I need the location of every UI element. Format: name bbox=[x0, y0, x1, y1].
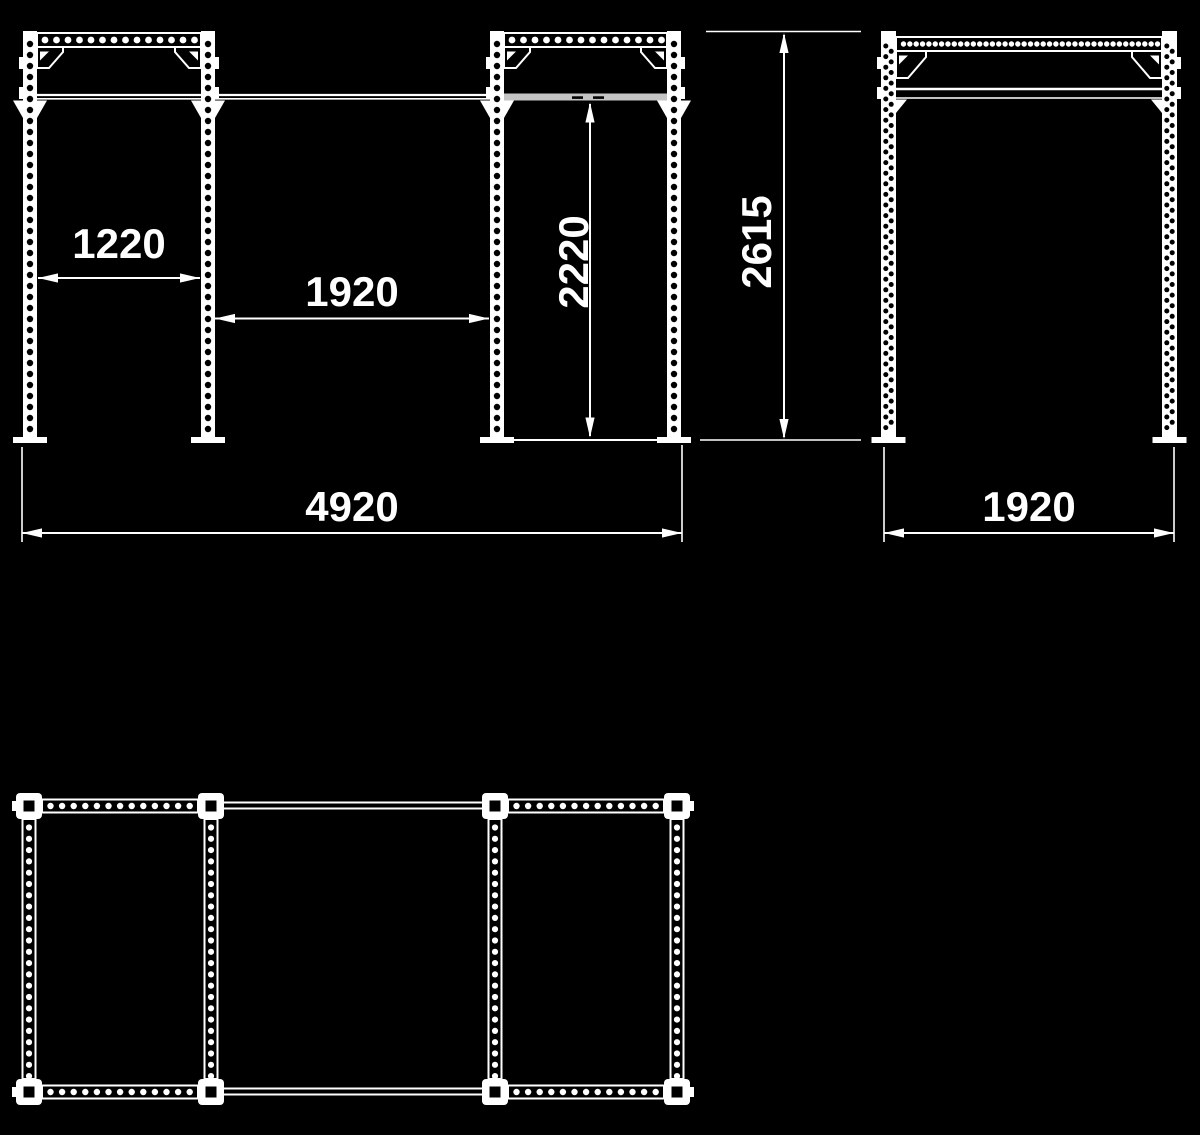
dim-label-bay-left: 1220 bbox=[72, 220, 165, 267]
drawing-canvas: 1220 1920 2220 2615 4920 1920 bbox=[0, 0, 1200, 1135]
dimension-overall-height bbox=[700, 32, 861, 441]
front-top-beams bbox=[37, 33, 667, 47]
dim-label-overall-height: 2615 bbox=[733, 195, 780, 288]
rig-dimension-drawing: 1220 1920 2220 2615 4920 1920 bbox=[0, 0, 1200, 1135]
plan-corner-plates bbox=[12, 793, 694, 1105]
dim-label-bar-height: 2220 bbox=[550, 215, 597, 308]
dim-label-overall-width: 4920 bbox=[305, 483, 398, 530]
plan-bar-connectors bbox=[224, 803, 482, 1095]
plan-beams bbox=[23, 800, 684, 1099]
plan-view bbox=[12, 793, 694, 1105]
side-base-plates bbox=[872, 437, 1187, 443]
side-top-beam bbox=[896, 37, 1162, 51]
pullup-bar bbox=[37, 94, 667, 101]
front-corner-gussets bbox=[37, 47, 667, 68]
dim-label-bay-middle: 1920 bbox=[305, 268, 398, 315]
side-posts bbox=[877, 31, 1181, 437]
side-corner-gussets bbox=[896, 51, 1162, 78]
side-elevation-view bbox=[872, 31, 1187, 443]
dimension-bay-middle bbox=[215, 314, 489, 323]
dim-label-side-depth: 1920 bbox=[982, 483, 1075, 530]
dimension-bay-left bbox=[38, 273, 200, 282]
dimension-annotations: 1220 1920 2220 2615 4920 1920 bbox=[22, 32, 1174, 543]
side-lower-beam bbox=[896, 89, 1162, 113]
